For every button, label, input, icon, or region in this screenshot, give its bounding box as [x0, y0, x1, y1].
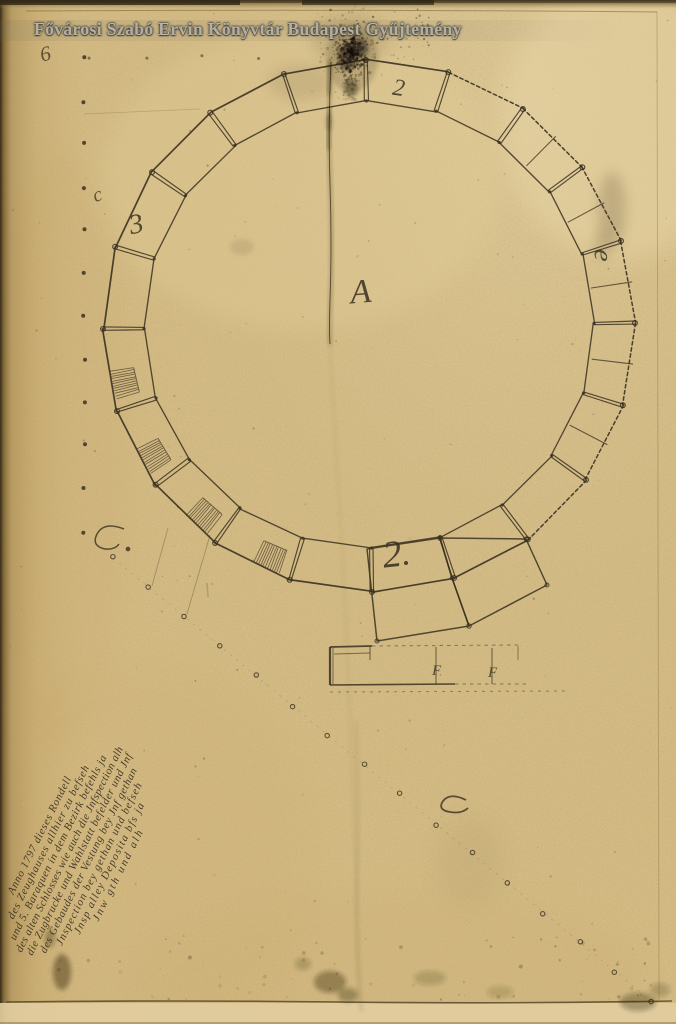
- svg-text:F: F: [487, 665, 498, 681]
- svg-text:F: F: [431, 663, 442, 679]
- svg-text:A: A: [347, 273, 373, 312]
